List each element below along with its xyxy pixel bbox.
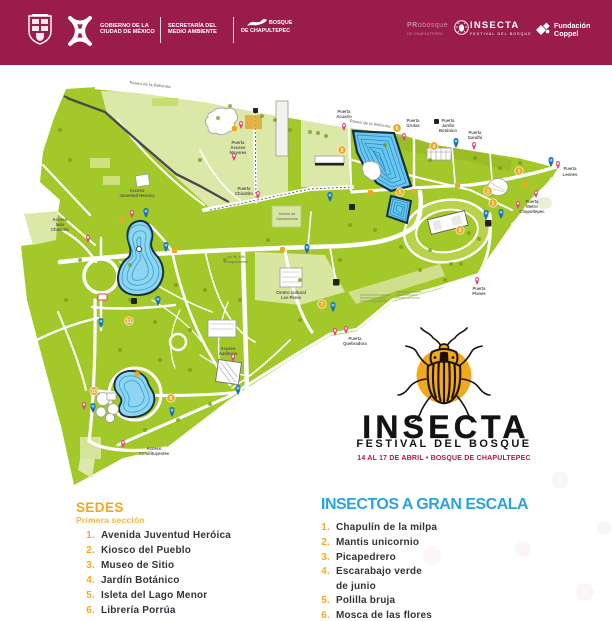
svg-text:3: 3 [492,201,495,207]
svg-text:Quebradora: Quebradora [343,341,367,346]
svg-text:Chivatito: Chivatito [51,227,69,232]
svg-text:2: 2 [487,189,490,195]
svg-text:Chivatito: Chivatito [235,191,253,196]
svg-text:Planes: Planes [472,291,486,296]
svg-text:4: 4 [433,144,436,150]
svg-text:6: 6 [396,126,399,132]
svg-text:Botánico: Botánico [439,128,457,133]
svg-text:1: 1 [518,169,521,175]
svg-text:Mayores: Mayores [230,150,248,155]
svg-text:Gandhi: Gandhi [468,135,482,140]
svg-text:11: 11 [126,319,132,325]
svg-text:8: 8 [341,148,344,154]
svg-text:Av. M. 100: Av. M. 100 [227,255,244,259]
svg-text:Acuario: Acuario [336,114,352,119]
svg-text:7: 7 [321,302,324,308]
svg-text:Los Pinos: Los Pinos [281,295,302,300]
svg-text:10: 10 [91,389,97,395]
svg-text:Centro de: Centro de [279,212,296,216]
svg-text:9: 9 [459,228,462,234]
svg-text:Convivencia: Convivencia [276,217,298,221]
svg-text:Juventud Heroica: Juventud Heroica [119,193,155,198]
svg-text:Compositores: Compositores [224,260,248,264]
svg-text:Leones: Leones [563,172,578,177]
svg-text:5: 5 [399,190,402,196]
svg-text:6: 6 [170,396,173,402]
svg-text:Grutas: Grutas [406,123,420,128]
svg-text:Paseo de la Reforma: Paseo de la Reforma [129,80,171,89]
svg-text:Chapultepec: Chapultepec [519,209,545,214]
svg-text:Constituyentes: Constituyentes [139,451,170,456]
svg-text:Puerta: Puerta [563,166,577,171]
svg-text:Auditorio: Auditorio [219,351,238,356]
